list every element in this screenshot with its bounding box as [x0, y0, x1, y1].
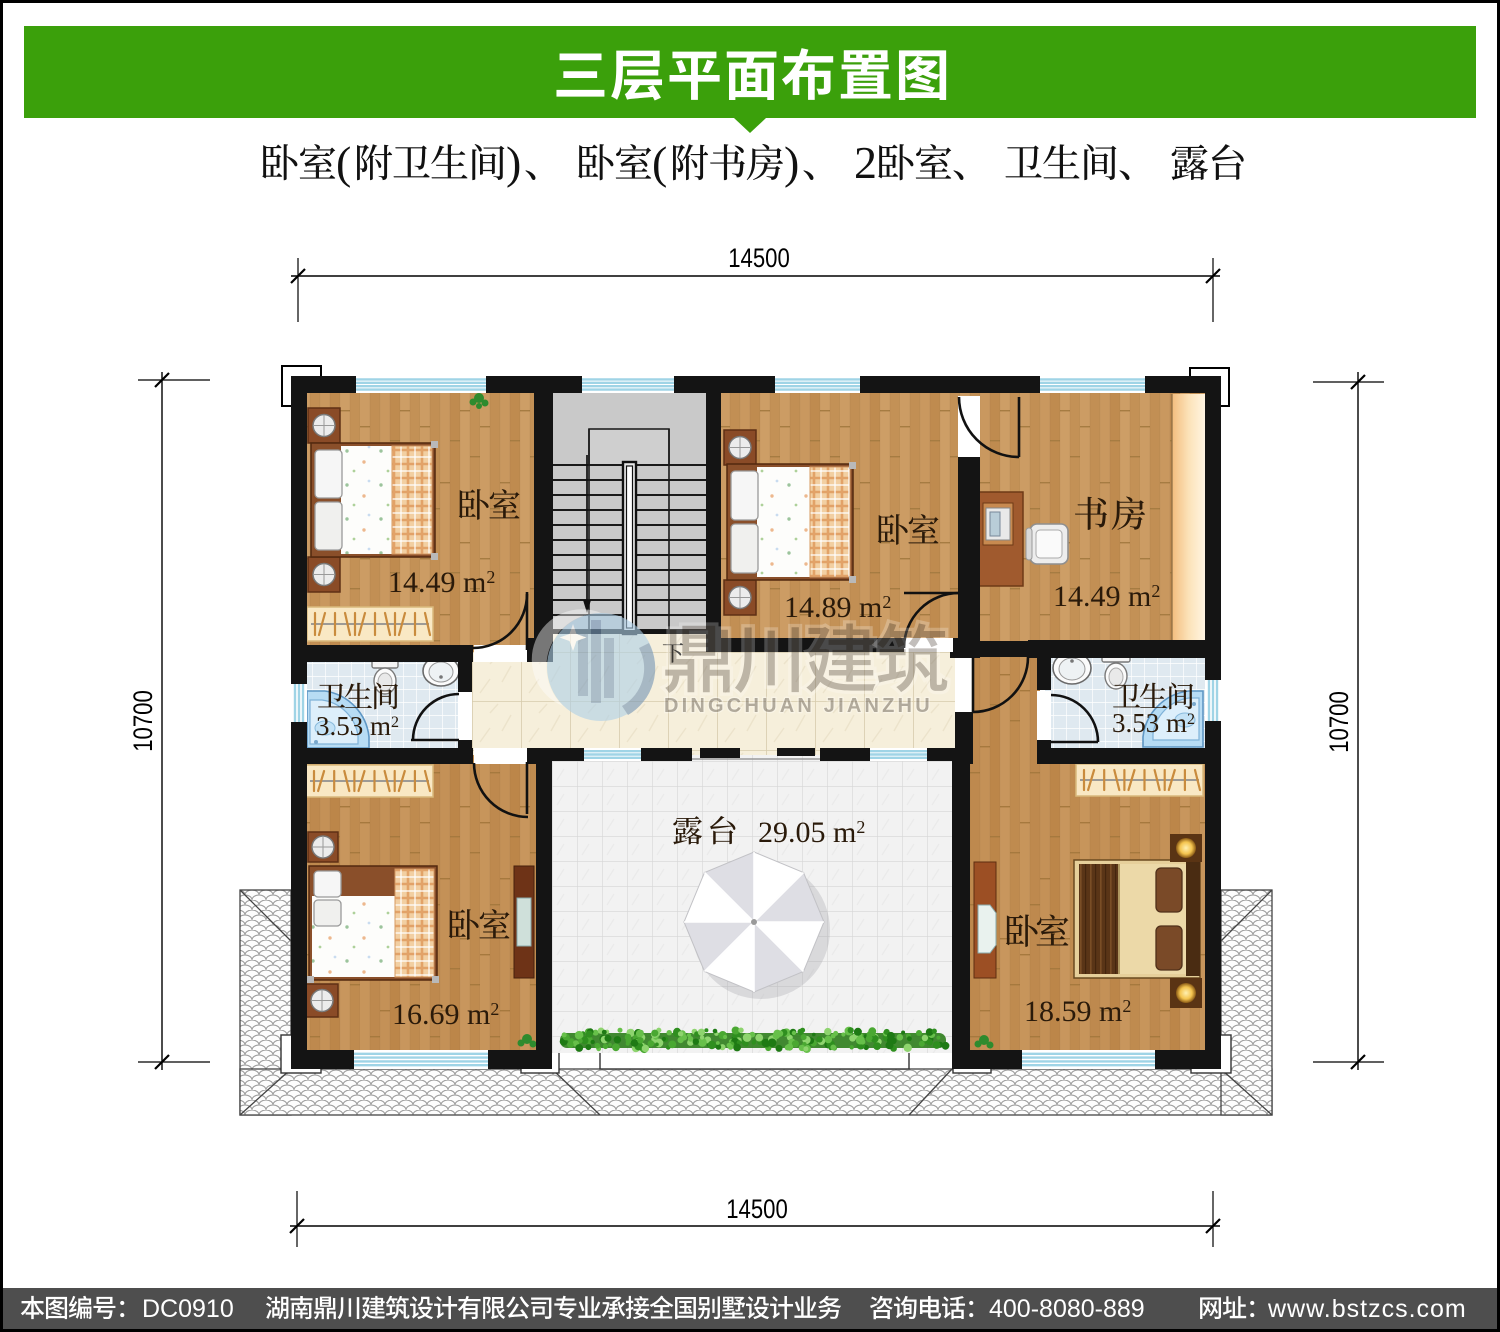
- svg-text:(: (: [652, 137, 667, 188]
- svg-text:18.59 m2: 18.59 m2: [1024, 995, 1131, 1028]
- svg-text:16.69 m2: 16.69 m2: [392, 998, 499, 1031]
- svg-text:10700: 10700: [1325, 691, 1355, 753]
- svg-text:DC0910: DC0910: [142, 1295, 234, 1323]
- svg-text:14.49 m2: 14.49 m2: [388, 566, 495, 599]
- svg-text:): ): [784, 137, 799, 188]
- svg-text:29.05 m2: 29.05 m2: [758, 816, 865, 849]
- svg-text:3.53 m2: 3.53 m2: [316, 711, 399, 741]
- svg-text:DINGCHUAN JIANZHU: DINGCHUAN JIANZHU: [664, 695, 933, 717]
- svg-text:14500: 14500: [728, 244, 790, 274]
- svg-text:(: (: [336, 137, 351, 188]
- svg-text:2: 2: [854, 137, 877, 188]
- svg-text:400-8080-889: 400-8080-889: [989, 1295, 1145, 1323]
- svg-text:14.89 m2: 14.89 m2: [784, 591, 891, 624]
- svg-text:10700: 10700: [129, 690, 159, 752]
- svg-text:): ): [506, 137, 521, 188]
- svg-text:www.bstzcs.com: www.bstzcs.com: [1267, 1295, 1467, 1323]
- svg-text:3.53 m2: 3.53 m2: [1112, 708, 1195, 738]
- svg-text:14500: 14500: [726, 1195, 788, 1225]
- svg-text:14.49 m2: 14.49 m2: [1053, 580, 1160, 613]
